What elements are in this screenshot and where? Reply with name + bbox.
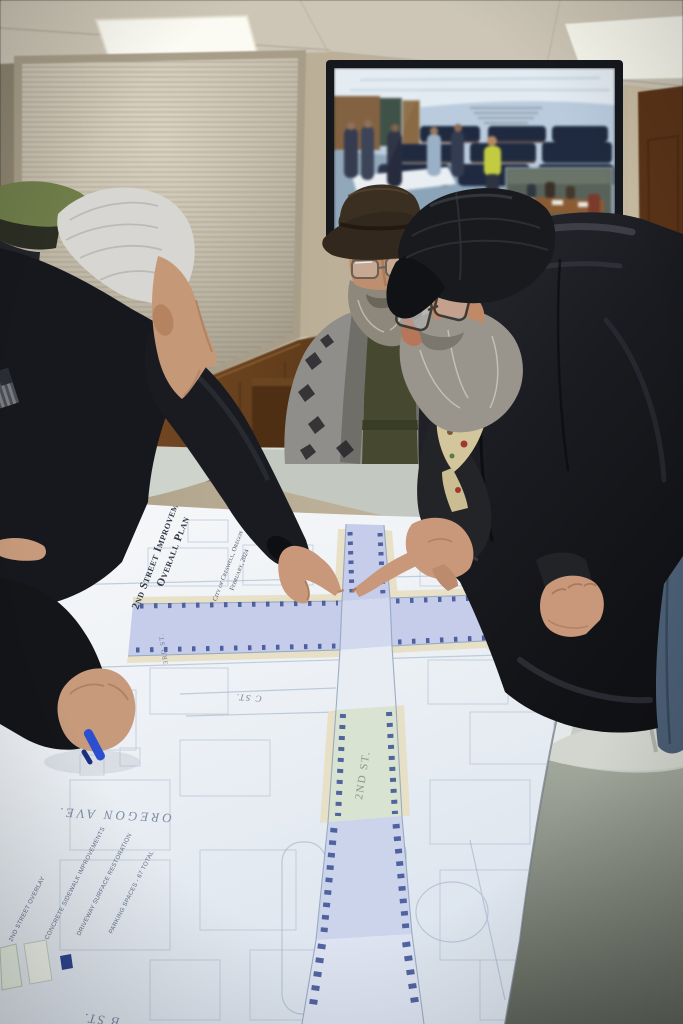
scene-svg: 2nd Street Improvements Overall Plan Cit… xyxy=(0,0,683,1024)
photo-vignette xyxy=(0,0,683,1024)
photo-scene: 2nd Street Improvements Overall Plan Cit… xyxy=(0,0,683,1024)
